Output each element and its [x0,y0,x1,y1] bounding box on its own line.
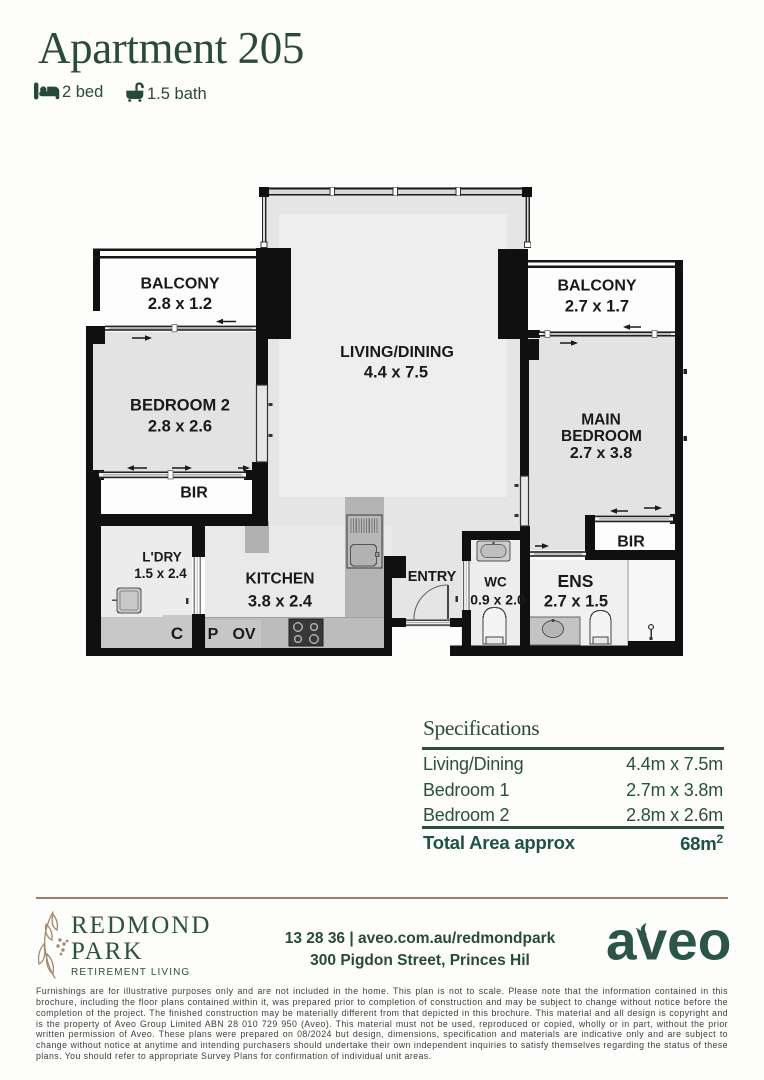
svg-text:BIR: BIR [180,485,208,502]
svg-text:LIVING/DINING: LIVING/DINING [340,344,454,361]
svg-text:BIR: BIR [617,534,645,551]
svg-text:BALCONY: BALCONY [140,276,219,293]
svg-text:2.7 x 1.5: 2.7 x 1.5 [544,593,608,611]
svg-text:2.7 x 1.7: 2.7 x 1.7 [565,298,629,316]
svg-text:ENTRY: ENTRY [408,569,457,585]
svg-text:2.7 x 3.8: 2.7 x 3.8 [570,445,632,462]
svg-text:ENS: ENS [558,571,594,591]
svg-text:KITCHEN: KITCHEN [246,571,315,588]
svg-text:L'DRY: L'DRY [142,550,181,565]
svg-text:P: P [208,626,219,643]
svg-text:WC: WC [484,575,507,590]
svg-text:MAIN: MAIN [581,412,621,429]
svg-text:aveo: aveo [606,918,731,970]
svg-text:BALCONY: BALCONY [557,278,636,295]
svg-text:0.9 x 2.0: 0.9 x 2.0 [470,592,525,608]
svg-text:BEDROOM: BEDROOM [561,428,642,445]
svg-text:1.5 x 2.4: 1.5 x 2.4 [134,566,187,581]
svg-text:3.8 x 2.4: 3.8 x 2.4 [248,593,313,611]
svg-text:C: C [171,624,183,643]
svg-text:BEDROOM 2: BEDROOM 2 [130,397,230,415]
svg-text:4.4 x 7.5: 4.4 x 7.5 [364,364,428,382]
svg-text:2.8 x 1.2: 2.8 x 1.2 [148,295,212,313]
svg-text:OV: OV [232,626,255,643]
svg-text:2.8 x 2.6: 2.8 x 2.6 [148,418,212,436]
